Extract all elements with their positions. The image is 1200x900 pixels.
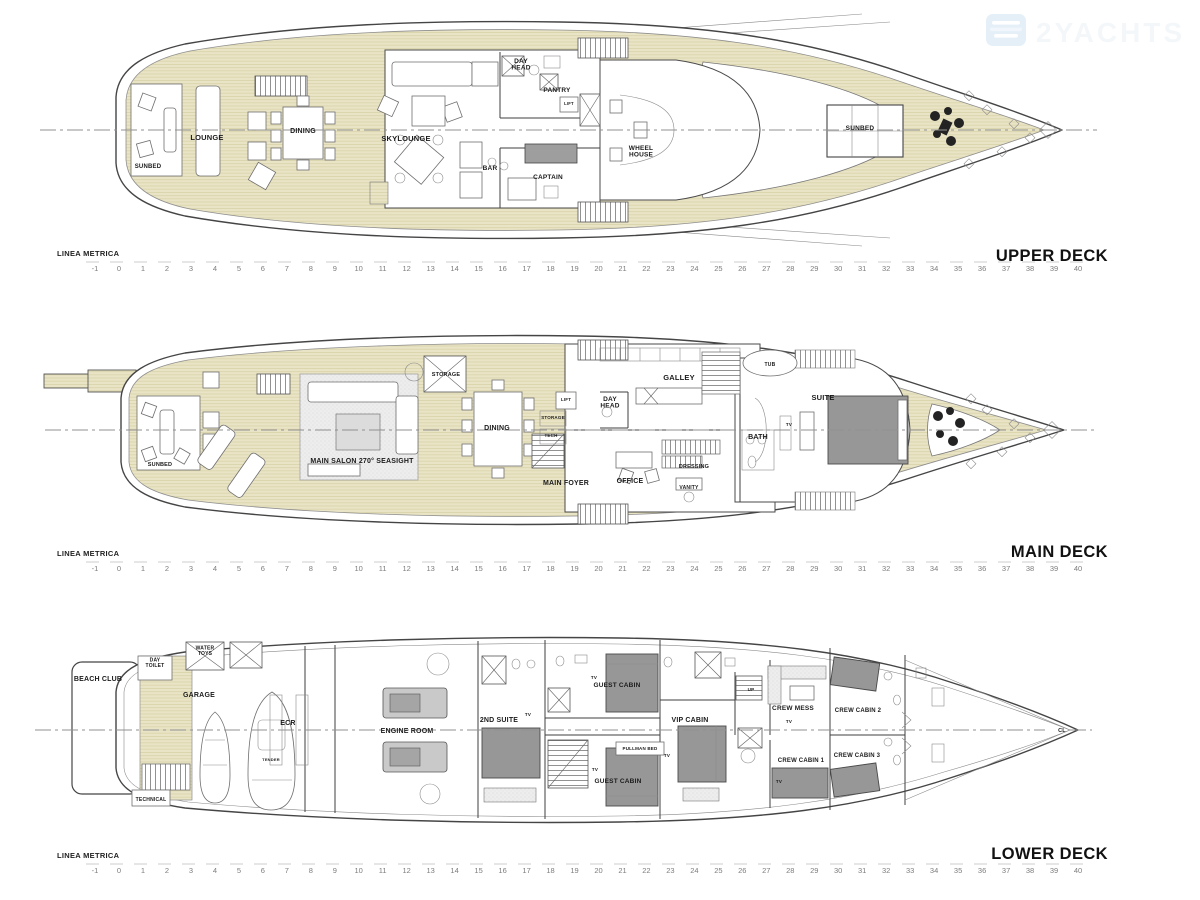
- room-label-crew-cabin-2: CREW CABIN 2: [835, 708, 882, 714]
- ruler-tick-29: 29: [810, 264, 818, 273]
- ruler-ticks-upper: -101234567891011121314151617181920212223…: [92, 264, 1083, 273]
- ruler-tick-36: 36: [978, 866, 986, 875]
- ruler-tick-39: 39: [1050, 264, 1058, 273]
- yacht-deck-plan-page: 2YACHTS: [0, 0, 1200, 900]
- metric-ruler-lower: LINEA METRICA LOWER DECK -10123456789101…: [57, 845, 1108, 875]
- ruler-tick-2: 2: [165, 564, 169, 573]
- room-label-garage: GARAGE: [183, 692, 215, 699]
- room-label-crew-cabin-1: CREW CABIN 1: [778, 758, 825, 764]
- ruler-tick-27: 27: [762, 866, 770, 875]
- ruler-tick-19: 19: [570, 264, 578, 273]
- ruler-tick-31: 31: [858, 564, 866, 573]
- ruler-tick-7: 7: [285, 564, 289, 573]
- ruler-tick-36: 36: [978, 264, 986, 273]
- ruler-tick-25: 25: [714, 264, 722, 273]
- ruler-tick-21: 21: [618, 866, 626, 875]
- ruler-tick-13: 13: [427, 264, 435, 273]
- room-label-crew-cabin-3: CREW CABIN 3: [834, 753, 881, 759]
- ruler-tick-37: 37: [1002, 866, 1010, 875]
- room-label-water-toys: WATERTOYS: [196, 646, 215, 657]
- passerelle: [44, 370, 136, 392]
- ruler-tick-38: 38: [1026, 564, 1034, 573]
- room-label-suite: SUITE: [811, 393, 834, 402]
- main-deck-plan: SUNBEDMAIN SALON 270° SEASIGHTSTORAGEDIN…: [44, 336, 1097, 525]
- vip-bed: [678, 726, 726, 782]
- ruler-tick-23: 23: [666, 866, 674, 875]
- ruler-tick-4: 4: [213, 564, 217, 573]
- ruler-tick-23: 23: [666, 264, 674, 273]
- room-label-sunbed: SUNBED: [846, 125, 875, 132]
- room-label-tv: TV: [591, 675, 597, 680]
- stairs-starboard: [578, 38, 628, 58]
- ruler-tick-40: 40: [1074, 866, 1082, 875]
- ruler-tick-35: 35: [954, 564, 962, 573]
- ruler-tick-37: 37: [1002, 264, 1010, 273]
- room-label-tv: TV: [786, 719, 792, 724]
- ruler-tick-7: 7: [285, 264, 289, 273]
- room-label-main-foyer: MAIN FOYER: [543, 480, 589, 487]
- ruler-tick-20: 20: [594, 564, 602, 573]
- watermark-text: 2YACHTS: [1036, 17, 1185, 48]
- yacht-deck-plans: 2YACHTS: [0, 0, 1200, 900]
- room-label-crew-mess: CREW MESS: [772, 705, 814, 712]
- ruler-tick-3: 3: [189, 866, 193, 875]
- ruler-tick-14: 14: [450, 866, 458, 875]
- ruler-tick-40: 40: [1074, 264, 1082, 273]
- room-label-pullman-bed: PULLMAN BED: [623, 746, 658, 751]
- ruler-tick-30: 30: [834, 866, 842, 875]
- room-label-captain: CAPTAIN: [533, 174, 563, 181]
- ruler-tick-0: 0: [117, 264, 121, 273]
- ruler-tick-25: 25: [714, 564, 722, 573]
- ruler-tick-21: 21: [618, 564, 626, 573]
- ruler-tick-39: 39: [1050, 564, 1058, 573]
- ruler-tick-0: 0: [117, 564, 121, 573]
- ruler-tick-31: 31: [858, 264, 866, 273]
- ruler-tick--1: -1: [92, 264, 99, 273]
- room-label-up: UP: [748, 687, 755, 692]
- ruler-tick-19: 19: [570, 866, 578, 875]
- ruler-tick-36: 36: [978, 564, 986, 573]
- ruler-tick-26: 26: [738, 866, 746, 875]
- ruler-tick-12: 12: [403, 564, 411, 573]
- ruler-tick-0: 0: [117, 866, 121, 875]
- ruler-tick-33: 33: [906, 564, 914, 573]
- ruler-tick-1: 1: [141, 866, 145, 875]
- ruler-tick-2: 2: [165, 866, 169, 875]
- ruler-tick-27: 27: [762, 564, 770, 573]
- ruler-tick-26: 26: [738, 564, 746, 573]
- ruler-tick-24: 24: [690, 564, 698, 573]
- ruler-tick-10: 10: [355, 564, 363, 573]
- ruler-tick-18: 18: [546, 564, 554, 573]
- ruler-tick-22: 22: [642, 564, 650, 573]
- ruler-tick-18: 18: [546, 264, 554, 273]
- ruler-tick-38: 38: [1026, 866, 1034, 875]
- ruler-tick-5: 5: [237, 866, 241, 875]
- room-label-wheel-house: WHEELHOUSE: [629, 145, 654, 159]
- room-label-ecr: ECR: [280, 720, 295, 727]
- stairs-port: [578, 202, 628, 222]
- ruler-tick-18: 18: [546, 866, 554, 875]
- ruler-tick-35: 35: [954, 866, 962, 875]
- ruler-tick-8: 8: [309, 866, 313, 875]
- deck-title-lower: LOWER DECK: [991, 845, 1108, 863]
- ruler-tick-16: 16: [498, 264, 506, 273]
- room-label-dining: DINING: [290, 128, 316, 135]
- captain-bed: [508, 178, 536, 200]
- room-label-tub: TUB: [765, 362, 776, 368]
- room-label-tv: TV: [776, 779, 782, 784]
- ruler-tick-40: 40: [1074, 564, 1082, 573]
- ruler-tick-17: 17: [522, 564, 530, 573]
- ruler-tick-33: 33: [906, 264, 914, 273]
- ruler-tick-16: 16: [498, 564, 506, 573]
- ruler-tick-31: 31: [858, 866, 866, 875]
- ruler-tick-16: 16: [498, 866, 506, 875]
- room-label-guest-cabin: GUEST CABIN: [595, 778, 642, 785]
- ruler-ticks-lower: -101234567891011121314151617181920212223…: [92, 866, 1083, 875]
- second-suite-bed: [482, 728, 540, 778]
- room-label-engine-room: ENGINE ROOM: [381, 728, 434, 735]
- ruler-tick-1: 1: [141, 564, 145, 573]
- room-label-main-salon-270-seasight: MAIN SALON 270° SEASIGHT: [310, 457, 414, 465]
- ruler-tick-24: 24: [690, 264, 698, 273]
- ruler-tick-15: 15: [474, 564, 482, 573]
- room-label-tv: TV: [664, 753, 670, 758]
- room-label-day-head: DAYHEAD: [600, 396, 619, 410]
- room-label-sunbed: SUNBED: [135, 164, 162, 170]
- room-label-2nd-suite: 2ND SUITE: [480, 717, 518, 724]
- guest-bed-bottom: [606, 748, 658, 806]
- watermark: 2YACHTS: [986, 14, 1185, 48]
- ruler-tick-10: 10: [355, 866, 363, 875]
- room-label-cl: CL: [1058, 728, 1066, 734]
- ruler-tick-39: 39: [1050, 866, 1058, 875]
- ruler-tick-22: 22: [642, 866, 650, 875]
- ruler-tick--1: -1: [92, 564, 99, 573]
- ruler-tick-32: 32: [882, 264, 890, 273]
- ruler-tick-3: 3: [189, 564, 193, 573]
- crew-bunk-3: [830, 763, 879, 797]
- ruler-tick-28: 28: [786, 866, 794, 875]
- ruler-tick-15: 15: [474, 866, 482, 875]
- ruler-tick-23: 23: [666, 564, 674, 573]
- room-label-skylounge: SKYLOUNGE: [381, 134, 430, 143]
- room-label-tech: TECH: [544, 433, 557, 438]
- ruler-tick-13: 13: [427, 564, 435, 573]
- room-label-bar: BAR: [483, 165, 498, 172]
- ruler-tick-9: 9: [333, 866, 337, 875]
- linea-metrica-label: LINEA METRICA: [57, 851, 120, 860]
- ruler-tick-13: 13: [427, 866, 435, 875]
- room-label-storage: STORAGE: [541, 415, 565, 420]
- ruler-tick-15: 15: [474, 264, 482, 273]
- ruler-tick-8: 8: [309, 564, 313, 573]
- ruler-tick-11: 11: [379, 866, 387, 875]
- crew-bunk-2: [830, 657, 879, 691]
- lower-deck-plan: BEACH CLUBDAYTOILETWATERTOYSGARAGETENDER…: [35, 638, 1092, 823]
- ruler-tick-28: 28: [786, 564, 794, 573]
- room-label-tender: TENDER: [262, 757, 280, 762]
- ruler-tick-5: 5: [237, 564, 241, 573]
- room-label-tv: TV: [786, 422, 792, 427]
- metric-ruler-upper: LINEA METRICA UPPER DECK -10123456789101…: [57, 247, 1108, 273]
- metric-ruler-main: LINEA METRICA MAIN DECK -101234567891011…: [57, 543, 1108, 573]
- ruler-tick-11: 11: [379, 264, 387, 273]
- room-label-technical: TECHNICAL: [136, 797, 167, 803]
- room-label-vip-cabin: VIP CABIN: [671, 717, 708, 724]
- ruler-tick-22: 22: [642, 264, 650, 273]
- ruler-tick-14: 14: [450, 264, 458, 273]
- linea-metrica-label: LINEA METRICA: [57, 249, 120, 258]
- ruler-tick-7: 7: [285, 866, 289, 875]
- ruler-tick-34: 34: [930, 264, 938, 273]
- ruler-tick-9: 9: [333, 264, 337, 273]
- ruler-tick-3: 3: [189, 264, 193, 273]
- room-label-guest-cabin: GUEST CABIN: [594, 682, 641, 689]
- ruler-tick-9: 9: [333, 564, 337, 573]
- ruler-tick-34: 34: [930, 866, 938, 875]
- ruler-tick-34: 34: [930, 564, 938, 573]
- ruler-tick-35: 35: [954, 264, 962, 273]
- ruler-tick-4: 4: [213, 264, 217, 273]
- ruler-tick-1: 1: [141, 264, 145, 273]
- room-label-tv: TV: [525, 712, 531, 717]
- ruler-tick-17: 17: [522, 264, 530, 273]
- ruler-tick-6: 6: [261, 264, 265, 273]
- ruler-tick-6: 6: [261, 866, 265, 875]
- room-label-vanity: VANITY: [679, 485, 699, 491]
- ruler-ticks-main: -101234567891011121314151617181920212223…: [92, 564, 1083, 573]
- ruler-tick--1: -1: [92, 866, 99, 875]
- room-label-dining: DINING: [484, 425, 510, 432]
- ruler-tick-4: 4: [213, 866, 217, 875]
- linea-metrica-label: LINEA METRICA: [57, 549, 120, 558]
- ruler-tick-20: 20: [594, 264, 602, 273]
- ruler-tick-5: 5: [237, 264, 241, 273]
- room-label-lift: LIFT: [561, 397, 571, 402]
- ruler-tick-12: 12: [403, 264, 411, 273]
- ruler-tick-30: 30: [834, 564, 842, 573]
- room-label-lift: LIFT: [564, 101, 574, 106]
- room-label-lounge: LOUNGE: [190, 133, 223, 142]
- room-label-storage: STORAGE: [432, 372, 461, 378]
- room-label-galley: GALLEY: [663, 373, 695, 382]
- room-label-office: OFFICE: [617, 478, 644, 485]
- room-label-sunbed: SUNBED: [148, 462, 172, 468]
- room-label-tv: TV: [592, 767, 598, 772]
- ruler-tick-17: 17: [522, 866, 530, 875]
- ruler-tick-30: 30: [834, 264, 842, 273]
- ruler-tick-6: 6: [261, 564, 265, 573]
- deck-title-main: MAIN DECK: [1011, 543, 1108, 561]
- ruler-tick-33: 33: [906, 866, 914, 875]
- ruler-tick-24: 24: [690, 866, 698, 875]
- ruler-tick-29: 29: [810, 866, 818, 875]
- ruler-tick-2: 2: [165, 264, 169, 273]
- upper-deck-plan: LOUNGEDININGSKYLOUNGESUNBEDDAYHEADPANTRY…: [40, 14, 1097, 246]
- ruler-tick-8: 8: [309, 264, 313, 273]
- ruler-tick-26: 26: [738, 264, 746, 273]
- ruler-tick-14: 14: [450, 564, 458, 573]
- watermark-logo-icon: [986, 14, 1026, 46]
- ruler-tick-20: 20: [594, 866, 602, 875]
- ruler-tick-32: 32: [882, 866, 890, 875]
- ruler-tick-27: 27: [762, 264, 770, 273]
- room-label-bath: BATH: [748, 434, 768, 441]
- ruler-tick-32: 32: [882, 564, 890, 573]
- room-label-dressing: DRESSING: [679, 464, 709, 470]
- ruler-tick-38: 38: [1026, 264, 1034, 273]
- ruler-tick-25: 25: [714, 866, 722, 875]
- ruler-tick-29: 29: [810, 564, 818, 573]
- ruler-tick-37: 37: [1002, 564, 1010, 573]
- ruler-tick-28: 28: [786, 264, 794, 273]
- ruler-tick-21: 21: [618, 264, 626, 273]
- ruler-tick-19: 19: [570, 564, 578, 573]
- ruler-tick-11: 11: [379, 564, 387, 573]
- room-label-beach-club: BEACH CLUB: [74, 676, 122, 683]
- room-label-pantry: PANTRY: [543, 87, 571, 94]
- ruler-tick-10: 10: [355, 264, 363, 273]
- room-label-day-head: DAYHEAD: [511, 58, 530, 72]
- ruler-tick-12: 12: [403, 866, 411, 875]
